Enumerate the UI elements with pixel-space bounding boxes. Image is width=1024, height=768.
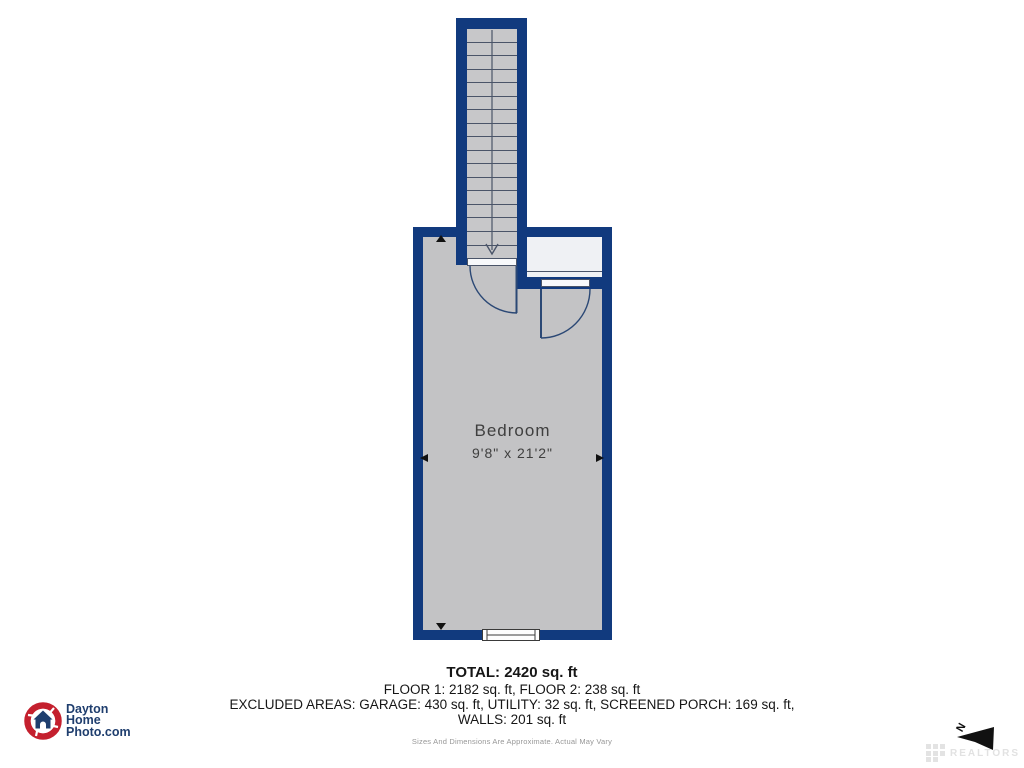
realtor-watermark: REALTORS: [926, 744, 1020, 762]
realtor-grid-icon: [926, 744, 946, 762]
area-summary: TOTAL: 2420 sq. ft FLOOR 1: 2182 sq. ft,…: [0, 664, 1024, 746]
logo-text: Dayton Home Photo.com: [66, 704, 131, 739]
stair-tread: [467, 205, 517, 219]
stair-tread: [467, 191, 517, 205]
stair-tread: [467, 164, 517, 178]
stair-tread: [467, 110, 517, 124]
closet-door-opening: [541, 279, 590, 287]
walls-area-label: WALLS: 201 sq. ft: [0, 712, 1024, 727]
camera-aperture-house-icon: [24, 702, 62, 740]
floor-areas-label: FLOOR 1: 2182 sq. ft, FLOOR 2: 238 sq. f…: [0, 682, 1024, 697]
room-dimensions-label: 9'8" x 21'2": [413, 445, 612, 461]
stair-tread: [467, 43, 517, 57]
floorplan-page: Bedroom 9'8" x 21'2" TOTAL: 2420 sq. ft …: [0, 0, 1024, 768]
stair-tread: [467, 124, 517, 138]
excluded-areas-label: EXCLUDED AREAS: GARAGE: 430 sq. ft, UTIL…: [0, 697, 1024, 712]
stair-tread: [467, 29, 517, 43]
room-name-label: Bedroom: [413, 421, 612, 441]
stair-tread: [467, 83, 517, 97]
stair-treads: [467, 29, 517, 258]
stair-tread: [467, 246, 517, 259]
stairs-door-opening: [467, 258, 517, 266]
north-label: N: [954, 721, 968, 734]
stair-tread: [467, 218, 517, 232]
stair-tread: [467, 178, 517, 192]
window: [482, 629, 540, 641]
total-area-label: TOTAL: 2420 sq. ft: [0, 664, 1024, 682]
dayton-home-photo-logo: Dayton Home Photo.com: [24, 702, 131, 740]
stair-tread: [467, 232, 517, 246]
disclaimer-text: Sizes And Dimensions Are Approximate. Ac…: [0, 737, 1024, 746]
closet-shelf-line: [527, 271, 602, 272]
stair-tread: [467, 56, 517, 70]
stair-tread: [467, 70, 517, 84]
stair-tread: [467, 151, 517, 165]
watermark-text: REALTORS: [950, 748, 1020, 759]
logo-line-3: Photo.com: [66, 727, 131, 739]
wall-segment: [517, 258, 527, 277]
stair-tread: [467, 97, 517, 111]
stair-tread: [467, 137, 517, 151]
